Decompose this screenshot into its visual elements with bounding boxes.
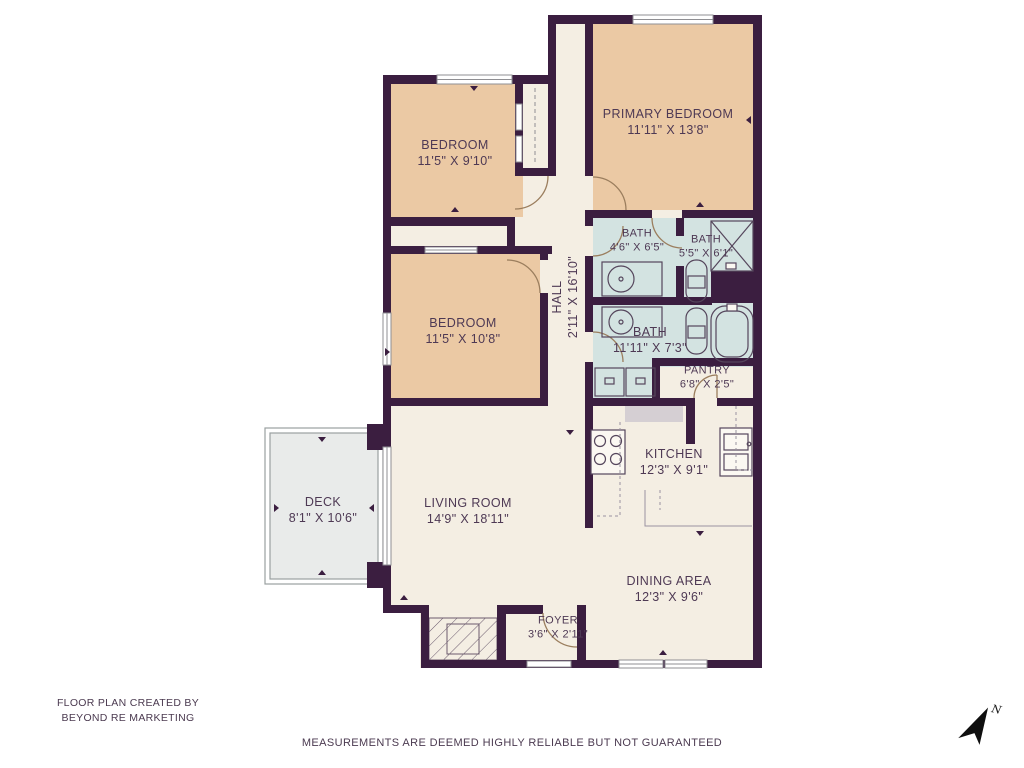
room-dims: 6'8" X 2'5" xyxy=(680,378,734,392)
room-label-bedroom-mid: BEDROOM 11'5" X 10'8" xyxy=(426,315,501,348)
room-label-deck: DECK 8'1" X 10'6" xyxy=(289,494,358,527)
room-name: BEDROOM xyxy=(418,137,493,153)
room-dims: 3'6" X 2'11" xyxy=(528,628,588,642)
room-dims: 11'11" X 13'8" xyxy=(603,122,734,138)
floor-plan-canvas: N xyxy=(0,0,1024,768)
room-label-dining-area: DINING AREA 12'3" X 9'6" xyxy=(627,573,712,606)
measurement-disclaimer: MEASUREMENTS ARE DEEMED HIGHLY RELIABLE … xyxy=(302,737,722,749)
room-name: BATH xyxy=(610,227,664,241)
room-name: PRIMARY BEDROOM xyxy=(603,106,734,122)
room-label-bath-3: BATH 11'11" X 7'3" xyxy=(613,324,687,357)
room-label-living-room: LIVING ROOM 14'9" X 18'11" xyxy=(424,495,512,528)
credit-line-2: BEYOND RE MARKETING xyxy=(55,711,201,726)
room-name: PANTRY xyxy=(680,364,734,378)
room-name: HALL xyxy=(549,256,565,338)
north-label: N xyxy=(989,702,1002,717)
room-dims: 5'5" X 6'1" xyxy=(679,247,733,261)
room-label-hall: HALL 2'11" X 16'10" xyxy=(549,256,582,338)
room-label-kitchen: KITCHEN 12'3" X 9'1" xyxy=(640,446,709,479)
room-name: BATH xyxy=(613,324,687,340)
creator-credit: FLOOR PLAN CREATED BY BEYOND RE MARKETIN… xyxy=(55,696,201,726)
room-name: FOYER xyxy=(528,614,588,628)
floor-plan-page: N PRIMARY BEDROOM 11'11" X 13'8" BEDROOM… xyxy=(0,0,1024,768)
room-label-foyer: FOYER 3'6" X 2'11" xyxy=(528,614,588,643)
room-name: BATH xyxy=(679,233,733,247)
room-dims: 11'5" X 10'8" xyxy=(426,331,501,347)
room-label-pantry: PANTRY 6'8" X 2'5" xyxy=(680,364,734,393)
room-name: LIVING ROOM xyxy=(424,495,512,511)
room-dims: 11'5" X 9'10" xyxy=(418,153,493,169)
room-name: DECK xyxy=(289,494,358,510)
room-dims: 11'11" X 7'3" xyxy=(613,340,687,356)
stairs-hatch xyxy=(429,618,497,660)
room-name: DINING AREA xyxy=(627,573,712,589)
room-dims: 14'9" X 18'11" xyxy=(424,511,512,527)
room-dims: 8'1" X 10'6" xyxy=(289,510,358,526)
room-dims: 12'3" X 9'6" xyxy=(627,589,712,605)
room-label-bath-1: BATH 4'6" X 6'5" xyxy=(610,227,664,256)
room-dims: 2'11" X 16'10" xyxy=(565,256,581,338)
room-dims: 12'3" X 9'1" xyxy=(640,462,709,478)
room-name: BEDROOM xyxy=(426,315,501,331)
room-dims: 4'6" X 6'5" xyxy=(610,241,664,255)
room-label-primary-bedroom: PRIMARY BEDROOM 11'11" X 13'8" xyxy=(603,106,734,139)
room-label-bedroom-top: BEDROOM 11'5" X 9'10" xyxy=(418,137,493,170)
room-name: KITCHEN xyxy=(640,446,709,462)
room-label-bath-2: BATH 5'5" X 6'1" xyxy=(679,233,733,262)
credit-line-1: FLOOR PLAN CREATED BY xyxy=(55,696,201,711)
